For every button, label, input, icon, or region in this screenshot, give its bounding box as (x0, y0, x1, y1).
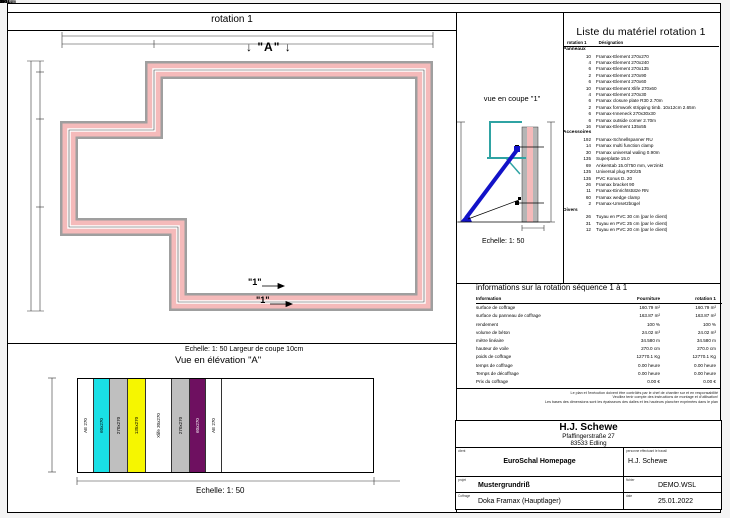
date-label: date (626, 494, 632, 498)
titleblock-worker-cell: personne effectuant le travail H.J. Sche… (623, 447, 722, 477)
elevation-panel-label: 270x270 (178, 417, 183, 434)
file-value: DEMO.WSL (658, 482, 721, 489)
elevation-panel-label: 60x270 (99, 418, 104, 433)
elevation-panel-label: Xlife 30x270 (156, 413, 161, 438)
info-row-rotation1: 0.00 € (660, 378, 716, 386)
project-label: projet (458, 478, 466, 482)
info-row-rotation1: 12770.1 Kg (660, 353, 716, 361)
worker-label: personne effectuant le travail (626, 449, 667, 453)
project-value: Mustergrundriß (478, 482, 623, 489)
info-table-header: Information Fourniture rotation 1 (476, 295, 722, 304)
plan-bottom-line (8, 343, 456, 344)
elevation-scale: Echelle: 1: 50 (196, 486, 244, 495)
info-row-label: hauteur de voile (476, 345, 596, 353)
titleblock-formwork-cell: Coffrage Doka Framax (Hauptlager) (455, 492, 624, 510)
client-label: client (458, 449, 465, 453)
info-row-rotation1: 0.00 heure (660, 370, 716, 378)
titleblock-date-cell: date 25.01.2022 (623, 492, 722, 510)
info-table-row: volume de béton 24.02 m³ 24.02 m³ (476, 329, 722, 337)
info-row-fourniture: 163.87 m² (596, 312, 660, 320)
info-row-label: Prix du coffrage (476, 378, 596, 386)
wall-formwork-band (69, 70, 424, 302)
company-name: H.J. Schewe (559, 422, 617, 433)
client-value: EuroSchal Homepage (456, 458, 623, 465)
info-row-label: surface de coffrage (476, 304, 596, 312)
elevation-panel-label: AE 270 (211, 418, 216, 433)
info-table-row: surface du panneau de coffrage 163.87 m²… (476, 312, 722, 320)
plan-title: rotation 1 (8, 14, 456, 25)
elevation-panel: 60x270 (190, 379, 206, 472)
material-item-label: Framax-Element 135x55 (596, 124, 646, 130)
info-row-label: surface du panneau de coffrage (476, 312, 596, 320)
company-street: Pfaffingerstraße 27 (562, 433, 615, 440)
material-item-qty: 2 (563, 201, 591, 207)
elevation-panel-label: 270x270 (116, 417, 121, 434)
file-label: fichier (626, 478, 635, 482)
info-row-rotation1: 0.00 heure (660, 362, 716, 370)
arrow-down-icon: ↓ (285, 40, 292, 54)
material-group-name: Accessoires (563, 130, 719, 137)
titleblock-client-cell: client EuroSchal Homepage (455, 447, 624, 477)
date-value: 25.01.2022 (658, 498, 721, 505)
section-view-drawing (457, 121, 555, 231)
material-list: Liste du matériel rotation 1 rotation 1 … (563, 26, 719, 233)
section-a-label: "A" (257, 40, 280, 54)
info-row-label: poids de coffrage (476, 353, 596, 361)
info-row-rotation1: 34.580 m (660, 337, 716, 345)
elevation-panel: 270x270 (172, 379, 190, 472)
info-table-row: hauteur de voile 270.0 cm 270.0 cm (476, 345, 722, 353)
material-item-qty: 12 (563, 227, 591, 233)
sheet-layer: rotation 1 ↓ "A" ↓ "1" "1" (0, 0, 730, 518)
elevation-panel-label: 135x270 (134, 417, 139, 434)
elevation-panel: AE 270 (206, 379, 222, 472)
titleblock-file-cell: fichier DEMO.WSL (623, 476, 722, 493)
info-row-fourniture: 24.02 m³ (596, 329, 660, 337)
info-row-fourniture: 160.79 m² (596, 304, 660, 312)
material-list-title: Liste du matériel rotation 1 (563, 26, 719, 38)
section-marker-a: ↓ "A" ↓ (246, 40, 292, 54)
disclaimer-line: Les bases des dimensions sont les épaiss… (460, 400, 718, 404)
info-table-row: Prix du coffrage 0.00 € 0.00 € (476, 378, 722, 386)
elevation-panel: AE 270 (78, 379, 94, 472)
info-row-fourniture: 0.00 heure (596, 370, 660, 378)
info-row-fourniture: 0.00 heure (596, 362, 660, 370)
elevation-panel: 135x270 (128, 379, 146, 472)
material-group: Accessoires 192 Framax-Schnellspanner RU… (563, 130, 719, 207)
info-row-rotation1: 163.87 m² (660, 312, 716, 320)
info-row-label: rendement (476, 321, 596, 329)
info-row-rotation1: 24.02 m³ (660, 329, 716, 337)
disclaimer-text: Le plan et l'exécution doivent être cont… (460, 391, 718, 404)
elevation-panel: Xlife 30x270 (146, 379, 172, 472)
coupe-title: vue en coupe "1" (462, 94, 562, 103)
titleblock-company-cell: H.J. Schewe Pfaffingerstraße 27 83533 Ed… (455, 420, 722, 448)
rotation-info-table: informations sur la rotation séquence 1 … (476, 283, 722, 386)
info-table-row: poids de coffrage 12770.1 Kg 12770.1 Kg (476, 353, 722, 361)
col-rotation: rotation 1 (567, 40, 587, 45)
wall-core (69, 70, 424, 302)
info-row-fourniture: 270.0 cm (596, 345, 660, 353)
material-item: 12 Tuyau en PVC 20 cm (par le client) (563, 227, 719, 233)
info-row-fourniture: 0.00 € (596, 378, 660, 386)
plan-titleband-line (8, 30, 456, 31)
info-row-rotation1: 160.79 m² (660, 304, 716, 312)
material-group: Panneaux 10 Framax-Element 270x270 4 Fra… (563, 47, 719, 130)
info-table-row: rendement 100 % 100 % (476, 321, 722, 329)
elevation-panel: 60x270 (94, 379, 110, 472)
material-item-label: Framax-Umsetzbügel (596, 201, 640, 207)
titleblock-project-cell: projet Mustergrundriß (455, 476, 624, 493)
info-disclaimer-divider (456, 388, 721, 389)
info-table-row: Temps de décoffrage 0.00 heure 0.00 heur… (476, 370, 722, 378)
material-list-header: rotation 1 Désignation (563, 38, 719, 47)
info-col-fourniture: Fourniture (596, 295, 660, 303)
info-table-row: surface de coffrage 160.79 m² 160.79 m² (476, 304, 722, 312)
info-row-label: mètre linéaire (476, 337, 596, 345)
info-table-title: informations sur la rotation séquence 1 … (476, 283, 722, 292)
material-group: Divers 26 Tuyau en PVC 30 cm (par le cli… (563, 208, 719, 234)
info-row-fourniture: 12770.1 Kg (596, 353, 660, 361)
elevation-panel-label: 60x270 (195, 418, 200, 433)
formwork-label: Coffrage (458, 494, 470, 498)
worker-value: H.J. Schewe (628, 458, 721, 465)
info-row-label: temps de coffrage (476, 362, 596, 370)
info-col-information: Information (476, 295, 596, 303)
info-row-rotation1: 270.0 cm (660, 345, 716, 353)
formwork-value: Doka Framax (Hauptlager) (478, 498, 623, 505)
info-table-row: temps de coffrage 0.00 heure 0.00 heure (476, 362, 722, 370)
info-row-label: Temps de décoffrage (476, 370, 596, 378)
material-group-name: Panneaux (563, 47, 719, 54)
plan-scale-note: Echelle: 1: 50 Largeur de coupe 10cm (185, 346, 303, 353)
elevation-view: AE 270 60x270 270x270 135x270 Xlife 30x2… (77, 378, 374, 473)
elevation-panel: 270x270 (110, 379, 128, 472)
company-city: 83533 Edling (570, 440, 606, 447)
wall-outer-band (69, 70, 424, 302)
info-table-row: mètre linéaire 34.580 m 34.580 m (476, 337, 722, 345)
info-row-fourniture: 100 % (596, 321, 660, 329)
elevation-panel-label: AE 270 (83, 418, 88, 433)
col-designation: Désignation (599, 40, 624, 45)
section-1-label: "1" (256, 295, 270, 305)
elevation-dim-label: 840 cm (0, 0, 14, 4)
wall-centerline (69, 70, 424, 302)
info-row-label: volume de béton (476, 329, 596, 337)
info-row-fourniture: 34.580 m (596, 337, 660, 345)
material-item-label: Tuyau en PVC 20 cm (par le client) (596, 227, 667, 233)
section-1-label: "1" (248, 277, 262, 287)
material-group-name: Divers (563, 208, 719, 215)
info-col-rotation1: rotation 1 (660, 295, 716, 303)
frame-top-inner-line (8, 12, 721, 13)
formwork-plan-sheet: { "page": { "plan_title": "rotation 1", … (0, 0, 730, 518)
info-row-rotation1: 100 % (660, 321, 716, 329)
arrow-down-icon: ↓ (246, 40, 253, 54)
elevation-title: Vue en élévation "A" (175, 355, 261, 366)
coupe-scale: Echelle: 1: 50 (482, 238, 524, 245)
